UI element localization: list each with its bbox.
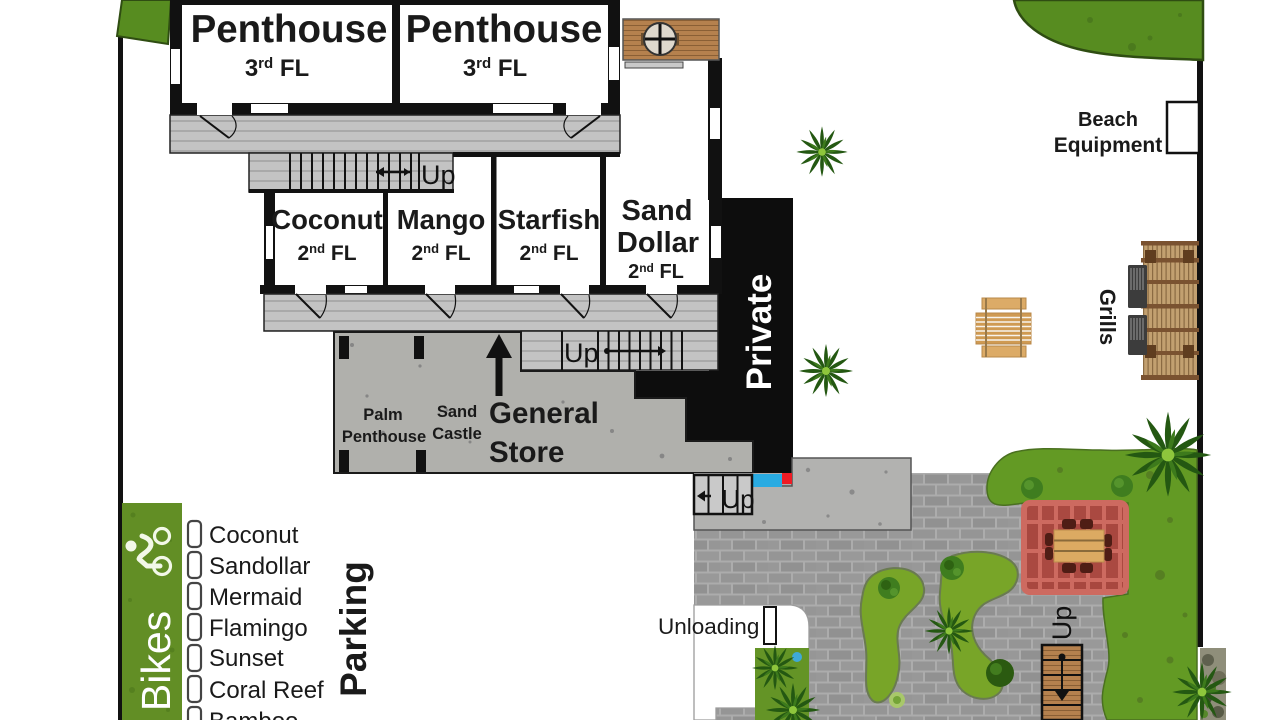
svg-text:Bamboo: Bamboo	[209, 708, 298, 720]
svg-text:Dollar: Dollar	[617, 227, 699, 259]
svg-text:Castle: Castle	[432, 425, 482, 443]
svg-text:Mermaid: Mermaid	[209, 584, 302, 611]
svg-text:Coral Reef: Coral Reef	[209, 677, 324, 704]
svg-text:Beach: Beach	[1078, 109, 1138, 131]
svg-text:3rd FL: 3rd FL	[245, 55, 309, 82]
svg-text:Equipment: Equipment	[1054, 134, 1163, 157]
svg-text:Penthouse: Penthouse	[342, 428, 426, 446]
svg-text:Sand: Sand	[622, 195, 693, 227]
svg-text:Mango: Mango	[397, 204, 486, 235]
svg-text:General: General	[489, 397, 599, 430]
svg-text:Palm: Palm	[363, 406, 402, 424]
svg-text:Coconut: Coconut	[271, 204, 383, 235]
svg-text:Up: Up	[421, 160, 456, 190]
svg-text:Penthouse: Penthouse	[406, 8, 603, 51]
svg-text:2nd FL: 2nd FL	[628, 261, 684, 283]
svg-text:Starfish: Starfish	[498, 204, 600, 235]
svg-text:Private: Private	[740, 274, 779, 391]
svg-text:Unloading: Unloading	[658, 614, 759, 639]
svg-text:Store: Store	[489, 436, 564, 469]
svg-text:Parking: Parking	[333, 561, 374, 697]
svg-text:Coconut: Coconut	[209, 522, 299, 549]
svg-text:Bikes: Bikes	[133, 611, 179, 711]
svg-text:Sunset: Sunset	[209, 645, 284, 672]
svg-text:2nd FL: 2nd FL	[519, 241, 578, 265]
svg-text:Sand: Sand	[437, 403, 477, 421]
svg-text:2nd FL: 2nd FL	[411, 241, 470, 265]
svg-text:Grills: Grills	[1095, 289, 1120, 345]
svg-text:Up: Up	[564, 338, 599, 368]
svg-text:Up: Up	[721, 484, 754, 514]
svg-text:3rd FL: 3rd FL	[463, 55, 527, 82]
svg-text:Up: Up	[1047, 606, 1077, 641]
svg-text:Penthouse: Penthouse	[191, 8, 388, 51]
svg-text:Sandollar: Sandollar	[209, 553, 310, 580]
svg-text:2nd FL: 2nd FL	[297, 241, 356, 265]
svg-text:Flamingo: Flamingo	[209, 615, 308, 642]
